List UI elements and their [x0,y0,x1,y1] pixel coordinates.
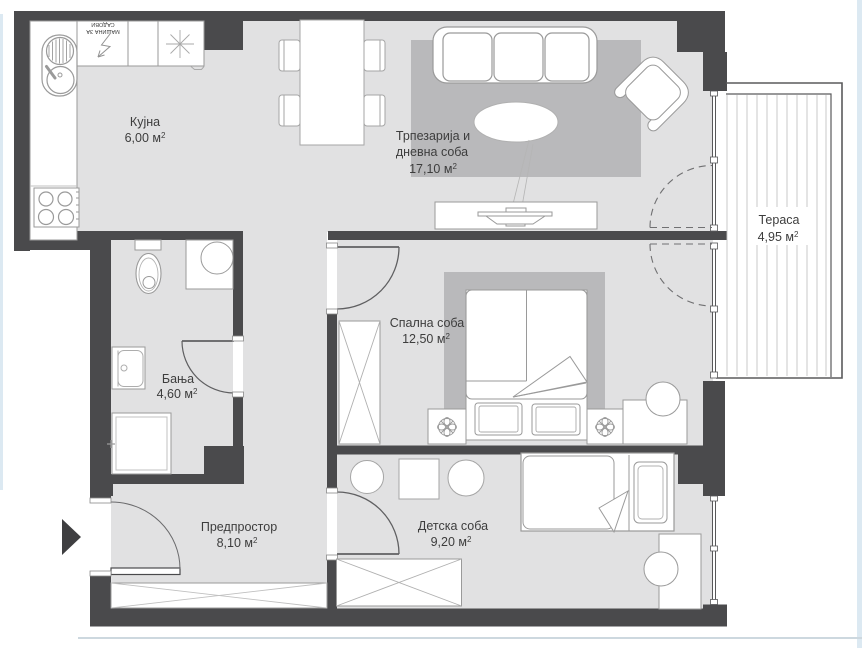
svg-text:дневна соба: дневна соба [396,145,468,159]
svg-text:17,10 м2: 17,10 м2 [409,162,457,176]
svg-text:Детска соба: Детска соба [418,519,488,533]
svg-text:9,20 м2: 9,20 м2 [431,535,472,549]
svg-text:12,50 м2: 12,50 м2 [402,332,450,346]
svg-text:Тераса: Тераса [759,213,800,227]
svg-text:МАШИНА ЗА: МАШИНА ЗА [86,28,120,34]
svg-text:Трпезарија и: Трпезарија и [396,129,470,143]
svg-text:САДОВИ: САДОВИ [91,21,114,27]
svg-text:Предпростор: Предпростор [201,520,277,534]
svg-text:Кујна: Кујна [130,115,160,129]
svg-text:6,00 м2: 6,00 м2 [125,131,166,145]
svg-text:4,60 м2: 4,60 м2 [157,387,198,401]
svg-text:8,10 м2: 8,10 м2 [217,536,258,550]
svg-text:Спална соба: Спална соба [390,316,465,330]
svg-text:4,95 м2: 4,95 м2 [758,230,799,244]
svg-text:Бања: Бања [162,372,194,386]
